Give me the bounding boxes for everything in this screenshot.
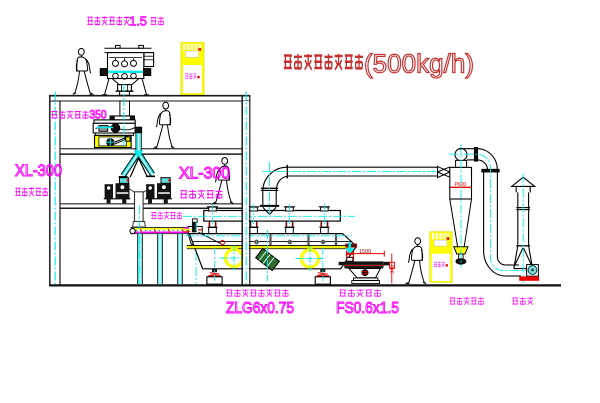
svg-text:P600: P600 (455, 182, 467, 188)
svg-text:XL-300: XL-300 (179, 164, 230, 183)
svg-text:(500kg/h): (500kg/h) (364, 51, 474, 79)
svg-text:FS0.6x1.5: FS0.6x1.5 (336, 300, 399, 317)
svg-text:350: 350 (90, 110, 107, 122)
svg-text:1500: 1500 (359, 249, 371, 255)
svg-text:ZLG6x0.75: ZLG6x0.75 (226, 300, 294, 317)
svg-text:1.5: 1.5 (129, 14, 147, 29)
svg-text:XL-300: XL-300 (15, 161, 62, 180)
svg-text:340: 340 (390, 265, 396, 274)
